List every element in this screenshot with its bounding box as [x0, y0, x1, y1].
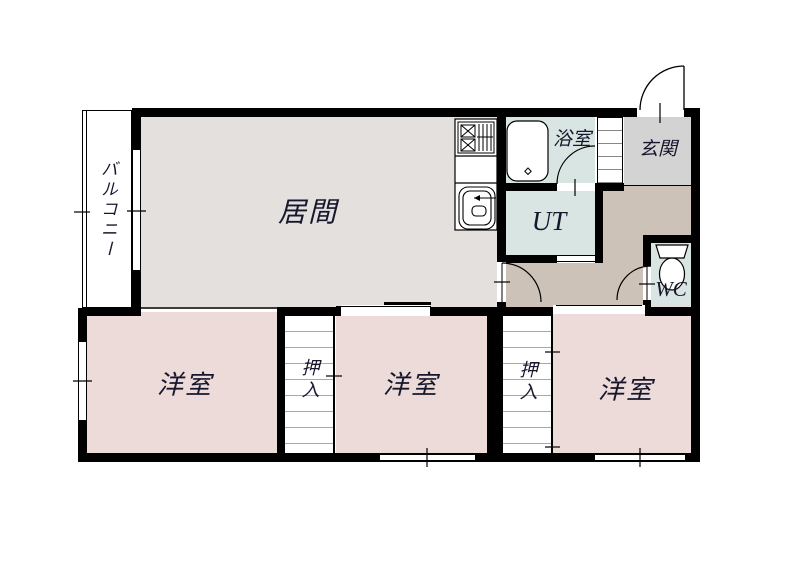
room3-bottom-window [595, 454, 685, 461]
balcony-rail-line [86, 111, 87, 307]
bathroom-label: 浴室 [553, 130, 591, 150]
living-room-label: 居間 [278, 198, 338, 227]
western-room2-label: 洋室 [383, 371, 439, 398]
shoe-cabinet [597, 117, 623, 184]
wc-label: WC [655, 278, 687, 300]
room1-left-window [78, 342, 87, 420]
utility-right-wall [595, 186, 603, 263]
mid-wall [277, 307, 341, 316]
western-room1-label: 洋室 [157, 371, 213, 398]
bath-door-opening [557, 183, 595, 191]
utility-label: UT [532, 207, 567, 235]
balcony-window [132, 150, 141, 270]
room2-sliding-door-line [384, 302, 431, 305]
closet1-left-wall [277, 308, 285, 453]
entrance-door-opening [637, 108, 684, 117]
utility-bottom-wall [497, 255, 557, 263]
closet2-left-wall [487, 307, 503, 453]
floor-plan: バルコニー 居間 浴室 玄関 UT WC 押入 押入 洋室 洋室 洋室 [0, 0, 792, 567]
closet2-label: 押入 [518, 360, 537, 404]
top-wall [132, 108, 637, 117]
bath-bottom-wall [506, 183, 557, 191]
balcony-label: バルコニー [98, 160, 116, 260]
hallway-floor [506, 263, 603, 308]
mid-wall [645, 307, 700, 316]
western-room3-label: 洋室 [598, 376, 654, 403]
closet2-right-line [551, 307, 553, 453]
room3-sliding-door-line [556, 305, 642, 306]
bathroom-floor [506, 117, 595, 184]
entrance-door-arc [640, 66, 684, 110]
room2-bottom-window [380, 454, 475, 461]
room2-sliding-door-line [336, 306, 431, 307]
living-room1-divider [141, 307, 277, 309]
balcony-bottom-wall [82, 307, 141, 316]
living-hall-wall [497, 108, 506, 262]
wc-left-wall [643, 243, 651, 266]
wc-top-wall [643, 235, 691, 243]
closet1-right-line [333, 316, 335, 453]
entrance-label: 玄関 [639, 140, 677, 160]
wc-door-opening [643, 266, 651, 300]
living-hall-door-opening [497, 262, 506, 302]
closet1-label: 押入 [300, 358, 319, 402]
right-wall [691, 108, 700, 462]
utility-sliding-door [557, 255, 595, 262]
